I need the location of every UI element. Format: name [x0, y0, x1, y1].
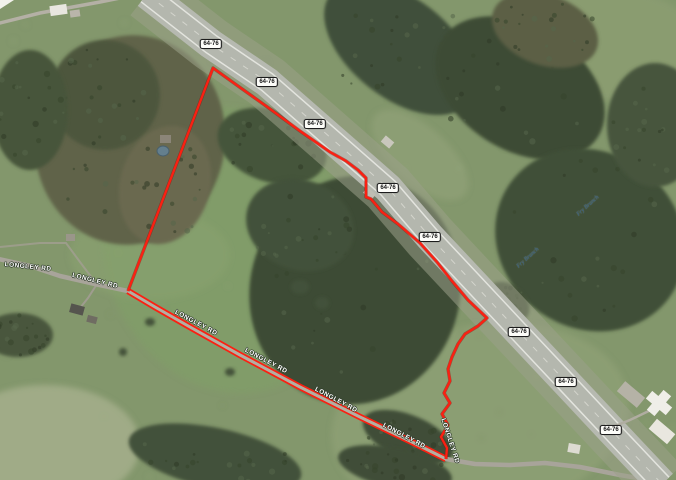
aerial-imagery [0, 0, 676, 480]
building [160, 135, 171, 143]
pond [157, 146, 169, 156]
map-canvas[interactable]: LONGLEY RDLONGLEY RDLONGLEY RDLONGLEY RD… [0, 0, 676, 480]
building [70, 9, 81, 17]
building [66, 234, 75, 241]
